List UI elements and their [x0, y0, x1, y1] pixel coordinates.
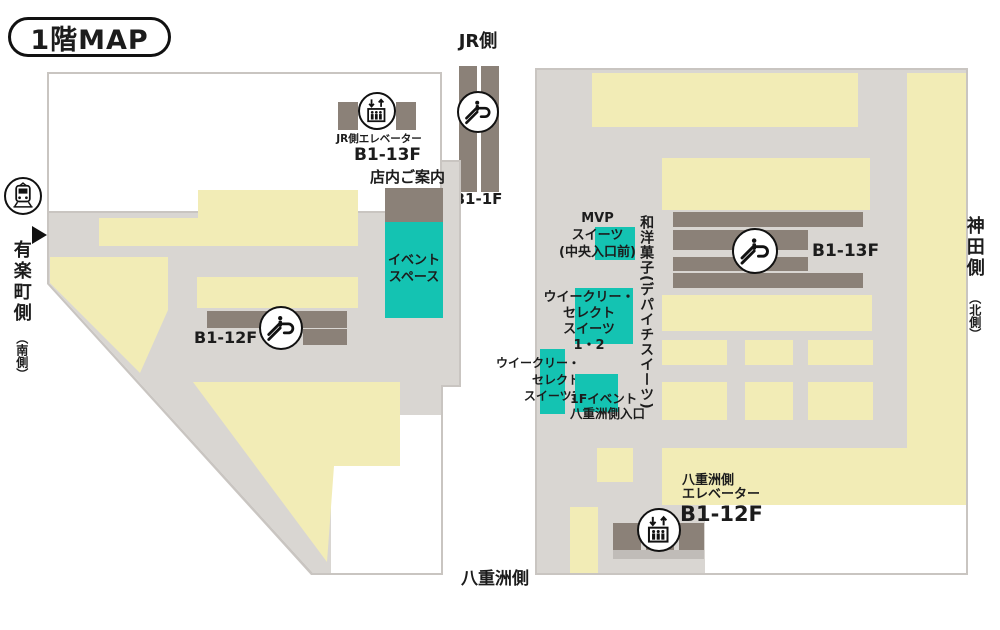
sales-area: [662, 158, 870, 210]
page-title: 1階MAP: [8, 17, 171, 57]
sales-area: [570, 507, 598, 573]
escalator-bank: [673, 212, 863, 227]
exit-label-yaesu: 八重洲側: [440, 570, 550, 590]
elevator-shaft: [396, 102, 416, 130]
store-info-label: 店内ご案内: [357, 169, 445, 186]
sales-area: [197, 277, 358, 308]
escalator-icon: [732, 228, 778, 274]
sales-area: [745, 382, 793, 420]
sales-area: [662, 340, 727, 365]
escalator-icon: [259, 306, 303, 350]
weekly-select-3-label: ウイークリー・ セレクト スイーツ3: [480, 355, 580, 405]
exit-label-kanda-sub: （北側）: [967, 292, 981, 340]
exit-label-kanda: 神田側: [963, 216, 984, 279]
sales-area: [808, 382, 873, 420]
sales-area: [808, 340, 873, 365]
f1-event-entrance-label: 1Fイベント 八重洲側入口: [570, 392, 645, 421]
elevator-shaft: [338, 102, 358, 130]
sales-area: [662, 295, 872, 331]
sales-area: [99, 218, 198, 246]
sales-area: [198, 190, 358, 246]
jr-elevator-label: JR側エレベーター: [328, 133, 430, 145]
exit-label-jr-side: JR側: [448, 32, 508, 53]
event-space-label: イベント スペース: [383, 252, 445, 286]
sales-area: [662, 382, 727, 420]
left-escalator-floors: B1-12F: [194, 329, 257, 347]
weekly-select-12-label: ウイークリー・ セレクト スイーツ 1・2: [543, 290, 635, 354]
exit-label-yurakucho-sub: （南側）: [14, 332, 28, 380]
sales-area: [907, 73, 966, 505]
train-icon: [4, 177, 42, 215]
elevator-icon: [637, 508, 681, 552]
sales-area: [592, 73, 858, 127]
entrance-arrow-icon: [32, 226, 47, 244]
event-space-header: [385, 188, 443, 222]
escalator-bank: [303, 329, 347, 345]
escalator-bank: [673, 273, 863, 288]
yaesu-elevator-label-2: エレベーター: [682, 488, 760, 503]
elevator-icon: [358, 92, 396, 130]
floor-map: 1階MAP JR側 B1-1F 有楽町側 （南側）: [0, 0, 1000, 630]
elevator-shaft: [679, 523, 704, 550]
exit-label-yurakucho: 有楽町側: [10, 240, 31, 324]
jr-elevator-floors: B1-13F: [340, 146, 435, 166]
right-escalator-floors: B1-13F: [812, 242, 879, 262]
sales-area: [597, 448, 633, 482]
escalator-icon: [457, 91, 499, 133]
sales-area: [745, 340, 793, 365]
